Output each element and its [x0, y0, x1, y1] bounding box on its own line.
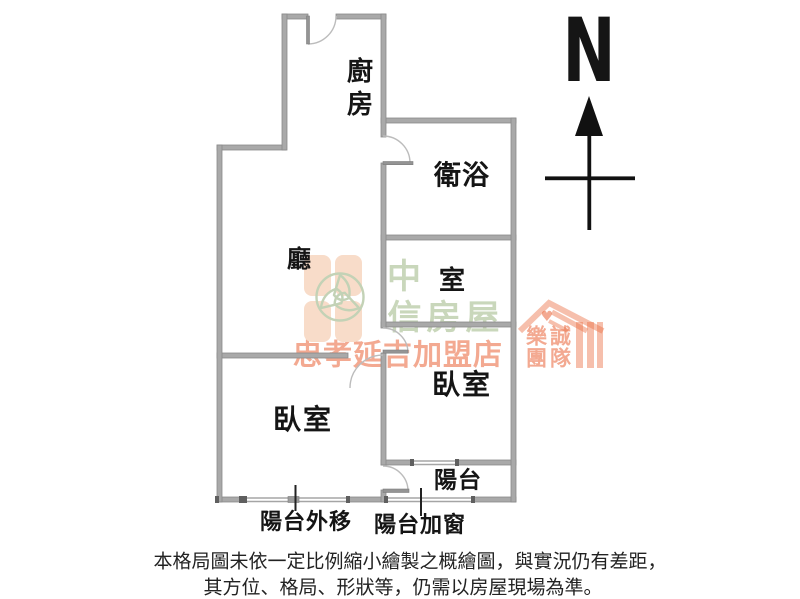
balcony-window-annotation: 陽台加窗: [374, 515, 466, 537]
bedroom-right-label: 臥室: [432, 371, 492, 399]
disclaimer-line2: 其方位、格局、形狀等，仍需以房屋現場為準。: [203, 573, 602, 599]
north-label: N: [562, 7, 615, 95]
balcony-label: 陽台: [434, 470, 482, 493]
labels-layer: 廚房 衛浴 廳 室 臥室 臥室 陽台 陽台外移 陽台加窗 N 本格局圖未依一定比…: [0, 0, 800, 599]
room-label: 室: [439, 268, 465, 294]
bedroom-left-label: 臥室: [273, 406, 333, 434]
kitchen-label: 廚房: [345, 56, 375, 122]
disclaimer-line1: 本格局圖未依一定比例縮小繪製之概繪圖，與實況仍有差距，: [153, 547, 666, 574]
balcony-extended-annotation: 陽台外移: [260, 512, 352, 534]
floor-plan: 中 信房屋 忠孝延吉加盟店 樂誠 團隊 ♥: [0, 0, 800, 599]
living-room-label: 廳: [287, 247, 311, 271]
bathroom-label: 衛浴: [434, 163, 490, 190]
